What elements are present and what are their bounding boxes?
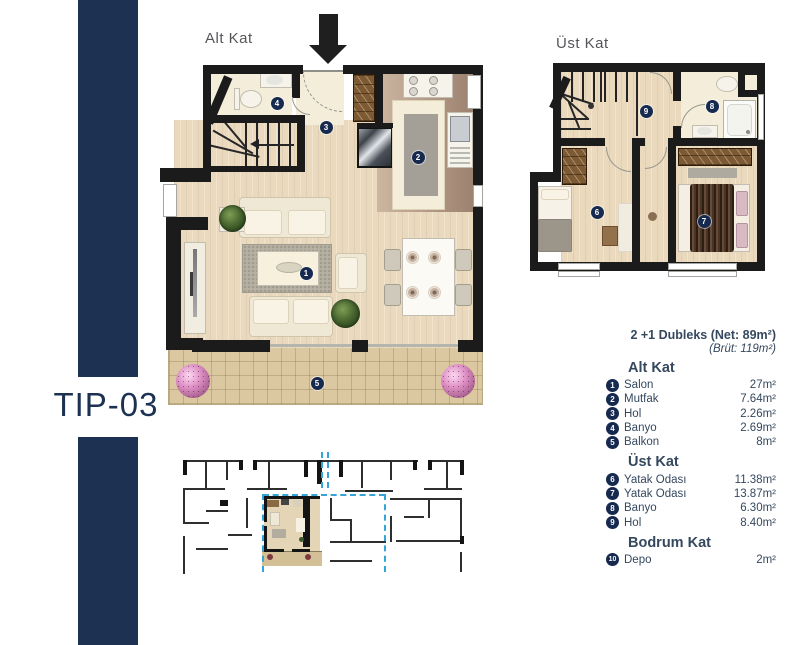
site-mark: [304, 460, 308, 477]
legend-row: 9Hol8.40m²: [606, 515, 776, 529]
site-line: [226, 462, 228, 480]
ust-kat-title: Üst Kat: [556, 35, 609, 52]
legend-row-marker: 4: [606, 422, 619, 435]
floor-plan-page: TIP-03 Alt Kat Üst Kat 123456789 2 +1 Du…: [0, 0, 800, 645]
entry-arrow-stem: [319, 14, 338, 46]
toilet-bowl: [240, 90, 262, 108]
site-line: [206, 510, 228, 512]
mini-plant: [299, 537, 304, 542]
site-mark: [220, 500, 228, 506]
legend-subtitle: (Brüt: 119m²): [606, 343, 776, 355]
tv-handle: [190, 272, 193, 296]
balcony-bush: [441, 364, 475, 398]
balcony-door-rail: [270, 344, 352, 347]
sofa-cushion: [288, 210, 326, 235]
site-line: [396, 540, 462, 542]
balcony-floor: [168, 348, 483, 405]
balcony-door-rail: [367, 344, 458, 347]
site-line: [330, 541, 386, 543]
sofa-cushion: [244, 210, 282, 235]
stair-arrow-line: [258, 144, 294, 146]
legend-room-area: 6.30m²: [740, 502, 776, 514]
legend-room-area: 7.64m²: [740, 393, 776, 405]
legend-row: 5Balkon8m²: [606, 435, 776, 449]
bath-sink-bowl: [266, 75, 283, 85]
legend-room-label: Hol: [624, 517, 641, 529]
site-line: [183, 460, 241, 462]
legend-room-label: Salon: [624, 379, 653, 391]
wall-segment: [297, 115, 305, 172]
unit-boundary-dashed: [384, 494, 386, 572]
closet: [353, 74, 375, 122]
site-line: [330, 519, 352, 521]
wall-segment: [166, 217, 208, 230]
upper-window: [668, 263, 737, 270]
room-marker-7: 7: [698, 215, 711, 228]
stair-newel: [588, 103, 594, 109]
unit-type-label: TIP-03: [42, 386, 170, 424]
legend-room-label: Yatak Odası: [624, 488, 686, 500]
refrigerator: [357, 127, 393, 168]
legend-row-marker: 9: [606, 516, 619, 529]
site-mark: [239, 460, 243, 470]
drainboard: [450, 147, 470, 164]
mini-balcony-dot: [305, 554, 311, 560]
wall-segment: [553, 63, 765, 72]
mini-furniture: [296, 518, 305, 532]
bath-door-arc: [292, 97, 310, 115]
site-mark: [253, 460, 257, 470]
unit-boundary-dashed: [327, 452, 329, 488]
site-line: [246, 498, 248, 528]
stove-burner: [409, 87, 418, 96]
desk: [602, 226, 618, 246]
legend-room-label: Yatak Odası: [624, 474, 686, 486]
wall-segment: [375, 65, 383, 127]
wall-segment: [352, 340, 368, 352]
site-line: [361, 462, 363, 488]
bathtub-drain: [746, 130, 750, 134]
site-mark: [339, 460, 343, 477]
mini-furniture: [272, 529, 286, 538]
sofa-cushion: [253, 299, 289, 324]
stove-burner: [429, 76, 438, 85]
wall-segment: [632, 146, 640, 264]
site-mark: [413, 460, 417, 470]
legend-room-area: 2.26m²: [740, 408, 776, 420]
wall-segment: [668, 146, 676, 264]
site-line: [183, 560, 185, 574]
site-mark: [460, 460, 464, 475]
left-window-niche: [163, 184, 177, 217]
upper-window: [558, 263, 600, 270]
legend-row: 8Banyo6.30m²: [606, 501, 776, 515]
tv-screen: [193, 249, 197, 317]
wall-segment: [203, 115, 305, 123]
wall-segment: [343, 65, 483, 74]
wall-segment: [473, 207, 483, 352]
legend-room-area: 13.87m²: [734, 488, 776, 500]
site-line: [247, 488, 287, 490]
room-marker-2: 2: [412, 151, 425, 164]
legend-row: 3Hol2.26m²: [606, 407, 776, 421]
legend-row-marker: 10: [606, 553, 619, 566]
legend-room-area: 11.38m²: [735, 474, 776, 486]
legend-sections: Alt Kat1Salon27m²2Mutfak7.64m²3Hol2.26m²…: [606, 360, 776, 567]
bed-pillow: [541, 189, 569, 200]
legend: 2 +1 Dubleks (Net: 89m²) (Brüt: 119m²) A…: [606, 328, 776, 567]
legend-row-marker: 2: [606, 393, 619, 406]
wall-segment: [192, 340, 270, 352]
site-mark: [460, 536, 464, 544]
plate-setting: [406, 251, 419, 264]
legend-room-area: 8m²: [756, 436, 776, 448]
legend-room-label: Banyo: [624, 502, 657, 514]
table-decor: [276, 262, 302, 273]
kitchen-sink: [450, 116, 470, 142]
site-line: [404, 516, 424, 518]
legend-room-area: 2m²: [756, 554, 776, 566]
wardrobe: [678, 148, 752, 166]
dining-chair: [455, 249, 472, 271]
stair-edge: [203, 166, 305, 172]
entry-arrow-head: [309, 45, 347, 64]
legend-row-marker: 3: [606, 407, 619, 420]
site-line: [205, 462, 207, 488]
plate-setting: [428, 251, 441, 264]
legend-room-label: Depo: [624, 554, 652, 566]
legend-row-marker: 1: [606, 379, 619, 392]
wall-segment: [738, 90, 760, 97]
wall-segment: [668, 138, 765, 146]
stair-mid-line: [600, 72, 602, 102]
stair-winder-line: [561, 128, 591, 130]
wall-segment: [553, 63, 561, 175]
wardrobe: [562, 148, 587, 185]
room-marker-4: 4: [271, 97, 284, 110]
legend-row: 2Mutfak7.64m²: [606, 392, 776, 406]
site-line: [428, 498, 430, 518]
legend-row-marker: 8: [606, 502, 619, 515]
room-marker-5: 5: [311, 377, 324, 390]
wall-segment: [632, 138, 645, 146]
plate-setting: [406, 286, 419, 299]
legend-section-header: Üst Kat: [628, 454, 776, 470]
stove-burner: [409, 76, 418, 85]
dining-chair: [384, 284, 401, 306]
dining-chair: [384, 249, 401, 271]
room-marker-3: 3: [320, 121, 333, 134]
unit-boundary-dashed: [262, 494, 264, 572]
bed-duvet: [690, 184, 734, 252]
stair-edge-line: [636, 72, 638, 136]
mini-furniture: [267, 500, 279, 507]
legend-row-marker: 6: [606, 473, 619, 486]
site-line: [446, 462, 448, 488]
unit-boundary-dashed: [321, 452, 323, 488]
right-window: [473, 185, 483, 207]
mini-furniture: [293, 500, 302, 507]
toilet-bowl: [716, 76, 738, 92]
legend-room-label: Mutfak: [624, 393, 659, 405]
site-line: [253, 460, 418, 462]
mini-furniture: [281, 499, 289, 505]
legend-room-label: Balkon: [624, 436, 659, 448]
legend-room-label: Hol: [624, 408, 641, 420]
site-line: [183, 522, 209, 524]
bed-blanket: [538, 219, 572, 252]
legend-row: 6Yatak Odası11.38m²: [606, 472, 776, 486]
site-line: [390, 498, 462, 500]
bed-pillow-pink: [736, 191, 748, 216]
site-line: [330, 560, 372, 562]
mini-wall: [264, 549, 284, 552]
upper-right-window: [758, 94, 764, 140]
bedside-rug-gray: [688, 168, 737, 178]
site-line: [268, 462, 270, 488]
legend-row: 1Salon27m²: [606, 378, 776, 392]
dining-chair: [455, 284, 472, 306]
room-marker-9: 9: [640, 105, 653, 118]
unit-boundary-dashed: [263, 494, 385, 496]
legend-section-header: Bodrum Kat: [628, 535, 776, 551]
legend-row-marker: 5: [606, 436, 619, 449]
stool: [648, 212, 657, 221]
wall-segment: [292, 65, 300, 98]
site-line: [330, 498, 332, 520]
site-line: [424, 488, 462, 490]
room-marker-6: 6: [591, 206, 604, 219]
legend-row-marker: 7: [606, 487, 619, 500]
stair-treads-upper: [571, 72, 636, 102]
legend-section-header: Alt Kat: [628, 360, 776, 376]
stove-burner: [429, 87, 438, 96]
brand-bar-bottom: [78, 437, 138, 645]
stair-arrow-head: [250, 139, 259, 149]
wall-segment: [673, 63, 681, 101]
site-line: [345, 490, 393, 492]
mini-wall: [292, 549, 310, 552]
brand-bar-top: [78, 0, 138, 377]
site-mark: [183, 460, 187, 475]
room-marker-8: 8: [706, 100, 719, 113]
site-line: [228, 534, 252, 536]
upper-window-sill: [668, 271, 737, 277]
legend-room-area: 2.69m²: [740, 422, 776, 434]
bath-sink-bowl: [697, 127, 712, 135]
legend-room-area: 27m²: [750, 379, 776, 391]
room-marker-1: 1: [300, 267, 313, 280]
wall-segment: [166, 230, 181, 348]
sofa-cushion: [293, 299, 329, 324]
mini-balcony-dot: [267, 554, 273, 560]
site-line: [350, 519, 352, 542]
balcony-bush: [176, 364, 210, 398]
plant: [331, 299, 360, 328]
site-line: [390, 516, 392, 542]
legend-room-area: 8.40m²: [740, 517, 776, 529]
bedside-rug: [618, 203, 633, 252]
wall-segment: [203, 65, 303, 74]
legend-title: 2 +1 Dubleks (Net: 89m²): [606, 328, 776, 342]
upper-window-sill: [558, 271, 600, 277]
site-line: [460, 552, 462, 572]
mini-wall: [264, 496, 320, 499]
wall-segment: [553, 138, 605, 146]
armchair-cushion: [338, 257, 358, 289]
site-line: [196, 548, 228, 550]
legend-row: 7Yatak Odası13.87m²: [606, 487, 776, 501]
site-mark: [428, 460, 432, 470]
legend-room-label: Banyo: [624, 422, 657, 434]
wall-segment: [530, 180, 538, 270]
plant: [219, 205, 246, 232]
stair-winder-line: [561, 118, 589, 120]
legend-row: 10Depo2m²: [606, 553, 776, 567]
legend-row: 4Banyo2.69m²: [606, 421, 776, 435]
wall-segment: [357, 123, 393, 128]
kitchen-window: [467, 75, 481, 109]
site-line: [183, 488, 185, 522]
dining-table: [402, 238, 455, 316]
site-line: [390, 462, 392, 480]
plate-setting: [428, 286, 441, 299]
bed-pillow-pink: [736, 223, 748, 248]
site-line: [183, 488, 225, 490]
alt-kat-title: Alt Kat: [205, 30, 253, 47]
mini-furniture: [270, 512, 280, 526]
